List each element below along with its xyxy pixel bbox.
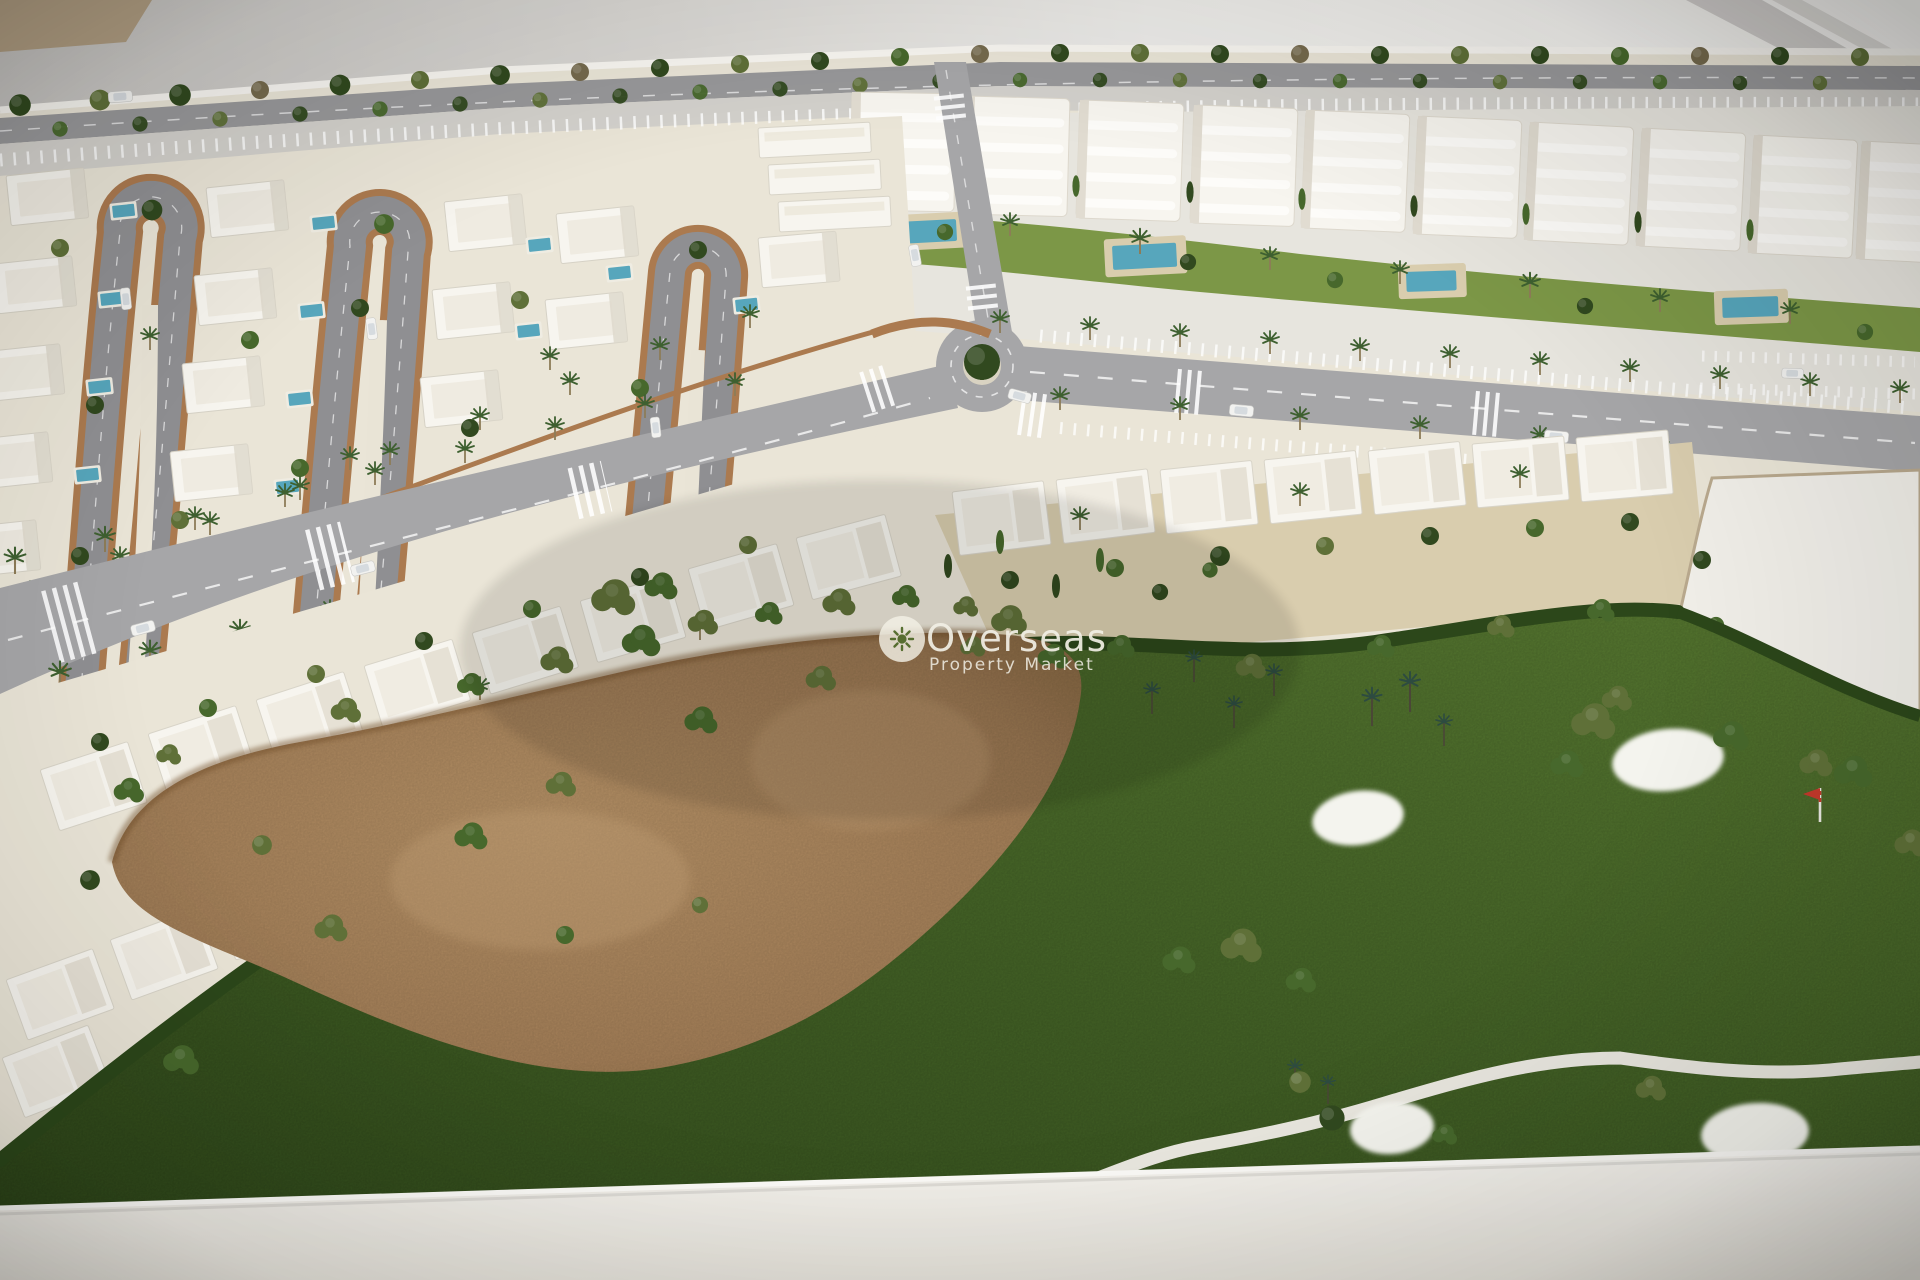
watermark-brand: Overseas [926, 617, 1107, 660]
model-platform: Overseas Property Market [0, 0, 1920, 1280]
scene-canvas: Overseas Property Market [0, 0, 1920, 1280]
sun-icon [879, 616, 925, 662]
model-photo: Overseas Property Market [0, 0, 1920, 1280]
watermark-tagline: Property Market [929, 655, 1095, 675]
